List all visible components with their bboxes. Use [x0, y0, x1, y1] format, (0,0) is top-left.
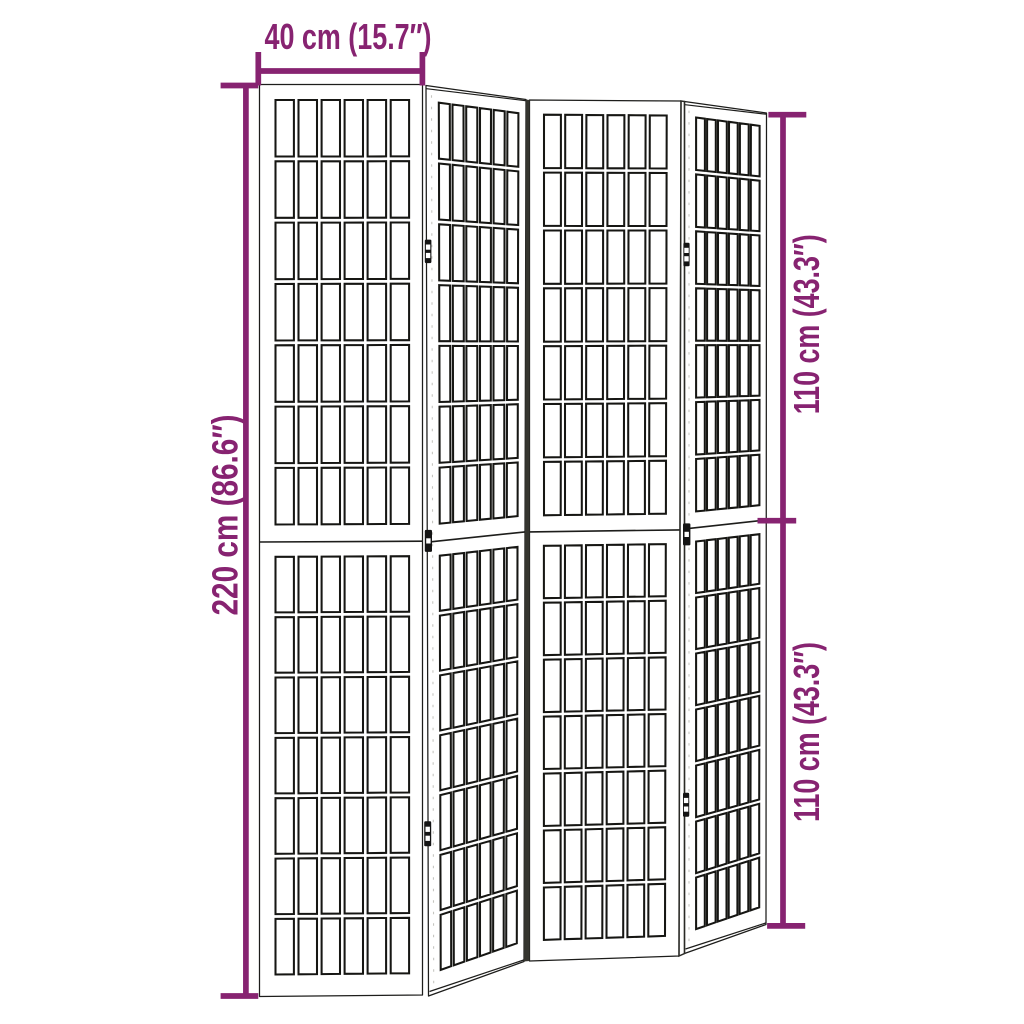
svg-text:110 cm (43.3″): 110 cm (43.3″) — [786, 642, 827, 822]
svg-text:110 cm (43.3″): 110 cm (43.3″) — [786, 234, 827, 414]
svg-text:220 cm (86.6″): 220 cm (86.6″) — [204, 415, 245, 616]
svg-text:40 cm (15.7″): 40 cm (15.7″) — [265, 16, 432, 57]
